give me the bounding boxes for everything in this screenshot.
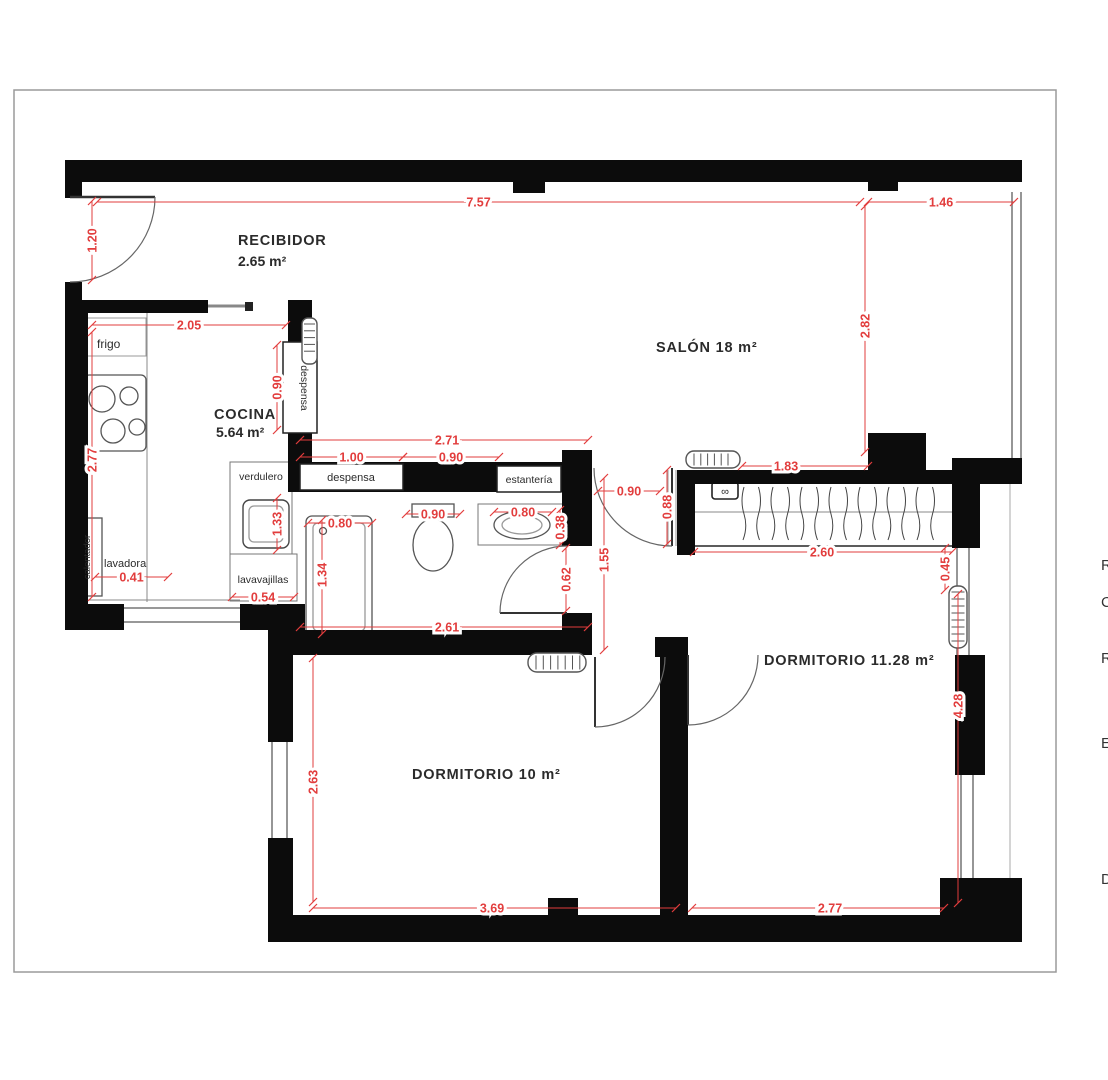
dimension-value: 2.71: [435, 434, 459, 448]
dimension-value: 0.80: [328, 517, 352, 531]
dimension: 0.41: [91, 571, 172, 585]
dimension: 1.46: [864, 196, 1018, 210]
room-label: DORMITORIO 10 m²: [412, 767, 561, 783]
fixture-label: calentador: [82, 535, 93, 579]
room-label: COCINA5.64 m²: [214, 407, 276, 440]
burner: [120, 387, 138, 405]
floor-plan: 7.571.461.202.822.050.902.770.411.330.54…: [0, 0, 1108, 1080]
window-bedroom11-lower: [961, 775, 973, 878]
dimension-value: 2.77: [818, 902, 842, 916]
fixture-label: despensa: [298, 365, 310, 411]
room-name: DORMITORIO 10 m²: [412, 767, 561, 783]
window-bedroom10: [272, 742, 287, 838]
dimension-value: 0.90: [439, 451, 463, 465]
dimension-value: 1.00: [339, 451, 363, 465]
dimension: 1.34: [316, 516, 330, 638]
wall: [88, 604, 124, 630]
windows: [124, 192, 1021, 918]
dimension: 2.63: [307, 654, 321, 906]
dimension-value: 0.88: [661, 495, 675, 519]
dimension: 2.60: [690, 546, 956, 560]
wall: [952, 458, 1022, 484]
room-label: RECIBIDOR2.65 m²: [238, 233, 327, 269]
dimension: 0.90: [402, 508, 464, 522]
wall: [65, 160, 1022, 182]
dimension-value: 2.63: [307, 770, 321, 794]
dimension-value: 0.80: [511, 506, 535, 520]
dimension-value: 1.55: [598, 548, 612, 572]
dimension-value: 1.33: [271, 512, 285, 536]
fixture-label: despensa: [327, 472, 376, 484]
dimension-value: 4.28: [952, 694, 966, 718]
dimension: 1.33: [271, 494, 285, 554]
dimension-value: 0.45: [939, 557, 953, 581]
burner: [89, 386, 115, 412]
dimension-value: 2.77: [86, 448, 100, 472]
wall: [268, 630, 293, 742]
dimension: 0.54: [228, 591, 298, 605]
wall: [268, 838, 293, 942]
room-name: COCINA: [214, 407, 276, 423]
wall: [548, 898, 578, 915]
wall: [655, 637, 688, 657]
legend-fragment: R: [1101, 650, 1108, 667]
wall: [78, 300, 208, 313]
fixture-label: verdulero: [239, 471, 283, 483]
dimension-annotations: 7.571.461.202.822.050.902.770.411.330.54…: [86, 196, 1019, 916]
dimension-value: 2.82: [859, 314, 873, 338]
kitchen-pocket-door: [208, 302, 253, 311]
dimension-value: 1.83: [774, 460, 798, 474]
dimension: 1.20: [86, 197, 100, 284]
room-area: 5.64 m²: [216, 424, 265, 440]
dimension-value: 1.20: [86, 228, 100, 252]
fixture-label: ∞: [721, 486, 729, 498]
dimension: 2.71: [296, 434, 592, 448]
walls: [65, 160, 1022, 942]
dimension-value: 1.34: [316, 563, 330, 587]
room-name: RECIBIDOR: [238, 233, 327, 249]
dimension-value: 2.61: [435, 621, 459, 635]
bedroom10-door: [595, 657, 665, 727]
dimension-value: 0.90: [421, 508, 445, 522]
dimension-value: 7.57: [466, 196, 490, 210]
fixture-label: lavadora: [104, 558, 147, 570]
wall: [952, 484, 980, 548]
shower-drain: [320, 528, 327, 535]
bathroom-door: [500, 546, 567, 613]
fixture-label: frigo: [97, 337, 121, 351]
dimension-value: 2.60: [810, 546, 834, 560]
dimension: 2.77: [688, 902, 948, 916]
wall: [240, 604, 305, 630]
wall: [868, 182, 898, 191]
burner: [129, 419, 145, 435]
entrance-door: [70, 197, 155, 282]
window-kitchen: [124, 608, 240, 622]
room-name: SALÓN 18 m²: [656, 338, 757, 356]
wall: [268, 915, 1022, 942]
dimension: 2.82: [859, 202, 873, 456]
dimension-value: 1.46: [929, 196, 953, 210]
dimension-value: 0.90: [271, 375, 285, 399]
dimension-value: 3.69: [480, 902, 504, 916]
room-label: DORMITORIO 11.28 m²: [764, 653, 934, 669]
wall: [868, 433, 926, 470]
dimension: 7.57: [93, 196, 864, 210]
fixture-label: estantería: [506, 474, 553, 486]
bedroom11-door: [688, 655, 758, 725]
wardrobe: [692, 482, 954, 546]
room-area: 2.65 m²: [238, 253, 287, 269]
room-name: DORMITORIO 11.28 m²: [764, 653, 934, 669]
dimension: 2.05: [88, 319, 290, 333]
wall: [660, 655, 688, 942]
dimension-value: 0.90: [617, 485, 641, 499]
dimension-value: 0.38: [554, 515, 568, 539]
fixture-label: lavavajillas: [238, 574, 289, 586]
legend-fragment: D: [1101, 871, 1108, 888]
dimension-value: 0.41: [119, 571, 143, 585]
window-salon: [1012, 192, 1021, 458]
room-label: SALÓN 18 m²: [656, 338, 757, 356]
toilet-bowl: [413, 519, 453, 571]
dimension-value: 0.54: [251, 591, 275, 605]
cooktop: [84, 375, 146, 451]
dimension: 0.62: [560, 544, 574, 615]
wall: [65, 160, 82, 198]
legend-fragment: C: [1101, 594, 1108, 611]
radiator: [302, 318, 317, 364]
radiator: [528, 653, 586, 672]
dimension: 3.69: [309, 902, 680, 916]
dimension-value: 0.62: [560, 567, 574, 591]
clipped-legend-fragments: RCRED: [1101, 557, 1108, 888]
wall: [513, 182, 545, 193]
legend-fragment: R: [1101, 557, 1108, 574]
legend-fragment: E: [1101, 735, 1108, 752]
wall: [288, 431, 312, 465]
dimension-value: 2.05: [177, 319, 201, 333]
burner: [101, 419, 125, 443]
dimension: 1.55: [598, 474, 612, 654]
